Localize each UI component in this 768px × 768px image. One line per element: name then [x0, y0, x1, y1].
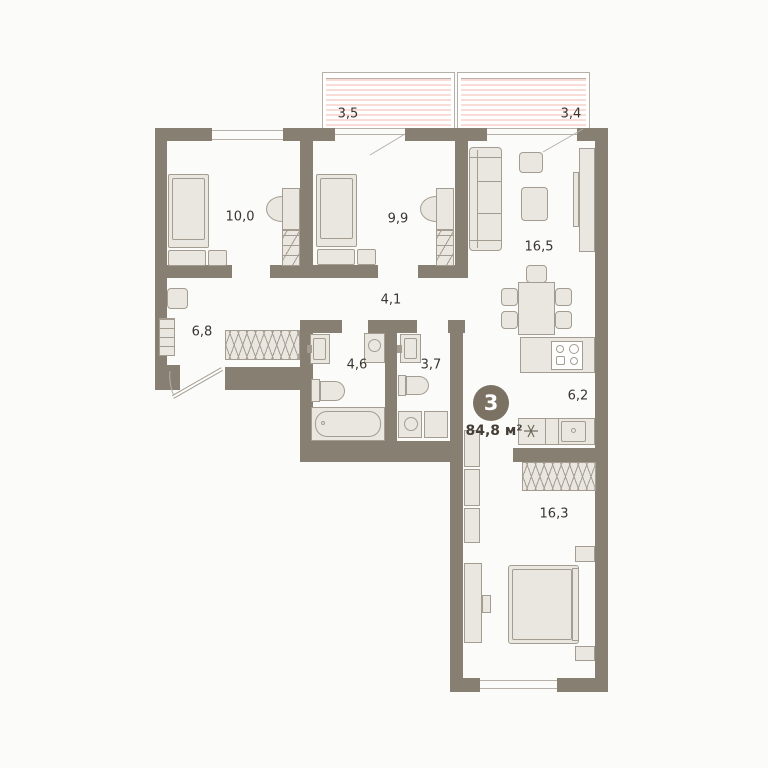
toilet-area-label: 3,7: [421, 358, 442, 373]
kitchen-area-label: 6,2: [568, 389, 589, 404]
bed-footboard: [168, 250, 206, 266]
chair-icon: [555, 288, 572, 306]
wall-segment: [300, 140, 313, 278]
wall-segment: [225, 367, 303, 390]
sofa-back-line: [477, 150, 478, 248]
living-room-area-label: 16,5: [525, 240, 554, 255]
sink-bowl: [313, 338, 326, 360]
burner-icon: [556, 356, 565, 365]
sofa-icon: [469, 147, 502, 251]
sink-drain: [571, 428, 576, 433]
coat-rack-icon: [225, 330, 300, 360]
sofa-armrest-line: [470, 157, 501, 158]
wardrobe-hangers-icon: [522, 462, 596, 491]
balcony-left-area-label: 3,5: [338, 107, 359, 122]
wardrobe-door-arc-icon: [266, 196, 282, 222]
tv-cabinet-icon: [579, 148, 595, 252]
bed-mattress: [512, 569, 572, 640]
chair-icon: [501, 311, 518, 329]
balcony-right-area-label: 3,4: [561, 107, 582, 122]
shoe-rack-icon: [159, 318, 175, 356]
toilet-cistern: [398, 375, 406, 396]
chair-icon: [555, 311, 572, 329]
bed-mattress: [320, 178, 353, 239]
faucet-icon: [307, 345, 312, 353]
nightstand-icon: [575, 646, 595, 661]
corridor-area-label: 4,1: [381, 293, 402, 308]
wall-segment: [300, 441, 455, 462]
toilet-icon: [406, 376, 429, 395]
chair-icon: [526, 265, 547, 283]
balcony-door-swing-icon: [370, 134, 405, 155]
coffee-table-icon: [521, 187, 548, 221]
wall-segment: [513, 448, 608, 462]
sofa-armrest-line: [470, 240, 501, 241]
bathtub-inner: [315, 411, 381, 437]
faucet-icon: [397, 345, 402, 353]
wardrobe-shelves-icon: [282, 230, 300, 266]
burner-icon: [569, 344, 579, 354]
bed-mattress: [172, 178, 205, 240]
bed-footboard: [317, 249, 355, 265]
wall-segment: [270, 265, 378, 278]
wardrobe-shelves-icon: [436, 230, 454, 266]
bedroom-2-area-label: 9,9: [388, 212, 409, 227]
entry-door-leaf-icon: [173, 369, 222, 397]
burner-icon: [556, 345, 564, 353]
wall-segment: [155, 365, 180, 390]
toilet-cistern: [311, 379, 320, 402]
wall-segment: [368, 320, 417, 333]
toilet-icon: [320, 381, 345, 401]
wall-segment: [450, 320, 463, 692]
wardrobe-icon: [282, 188, 300, 230]
dining-table-icon: [518, 282, 555, 335]
sink-bowl: [404, 338, 417, 359]
balcony-door-threshold: [335, 134, 405, 135]
desk-chair-icon: [482, 595, 491, 613]
counter-icon: [424, 411, 448, 438]
wardrobe-door-arc-icon: [420, 196, 436, 222]
washing-machine-drum: [368, 339, 381, 352]
wall-segment: [418, 265, 468, 278]
hallway-area-label: 6,8: [192, 325, 213, 340]
nightstand-icon: [357, 249, 376, 265]
bedroom-1-area-label: 10,0: [226, 210, 255, 225]
rooms-count: 3: [484, 391, 499, 415]
window: [480, 680, 557, 689]
tv-icon: [573, 172, 579, 227]
floor-plan: 3,5 3,4 10,0 9,9 16,5 4,1 6,8 4,6 3,7 6,…: [0, 0, 768, 768]
wall-segment: [595, 128, 608, 692]
washing-machine-drum: [404, 417, 418, 431]
nightstand-icon: [575, 546, 595, 562]
pouf-icon: [167, 288, 188, 309]
window: [212, 130, 283, 140]
wall-segment: [455, 140, 468, 278]
closet-icon: [464, 469, 480, 506]
total-area-label: 84,8 м²: [466, 423, 523, 439]
wardrobe-icon: [436, 188, 454, 230]
burner-icon: [570, 357, 578, 365]
wall-segment: [450, 678, 480, 692]
balcony-door-threshold: [487, 134, 577, 135]
desk-icon: [464, 563, 482, 643]
rooms-count-badge: 3: [473, 385, 509, 421]
bathroom-area-label: 4,6: [347, 358, 368, 373]
chair-icon: [501, 288, 518, 306]
sofa-cushion-line: [478, 181, 501, 182]
wall-segment: [155, 265, 232, 278]
closet-icon: [464, 508, 480, 543]
counter-divider: [545, 418, 546, 445]
entry-door-leaf-icon: [173, 369, 222, 397]
nightstand-icon: [208, 250, 227, 266]
bed-headboard: [572, 568, 579, 641]
coffee-table-icon: [519, 152, 543, 173]
sofa-cushion-line: [478, 213, 501, 214]
bedroom-3-area-label: 16,3: [540, 507, 569, 522]
bathtub-drain: [321, 421, 325, 425]
counter-divider: [558, 418, 559, 445]
wall-segment: [405, 128, 487, 141]
